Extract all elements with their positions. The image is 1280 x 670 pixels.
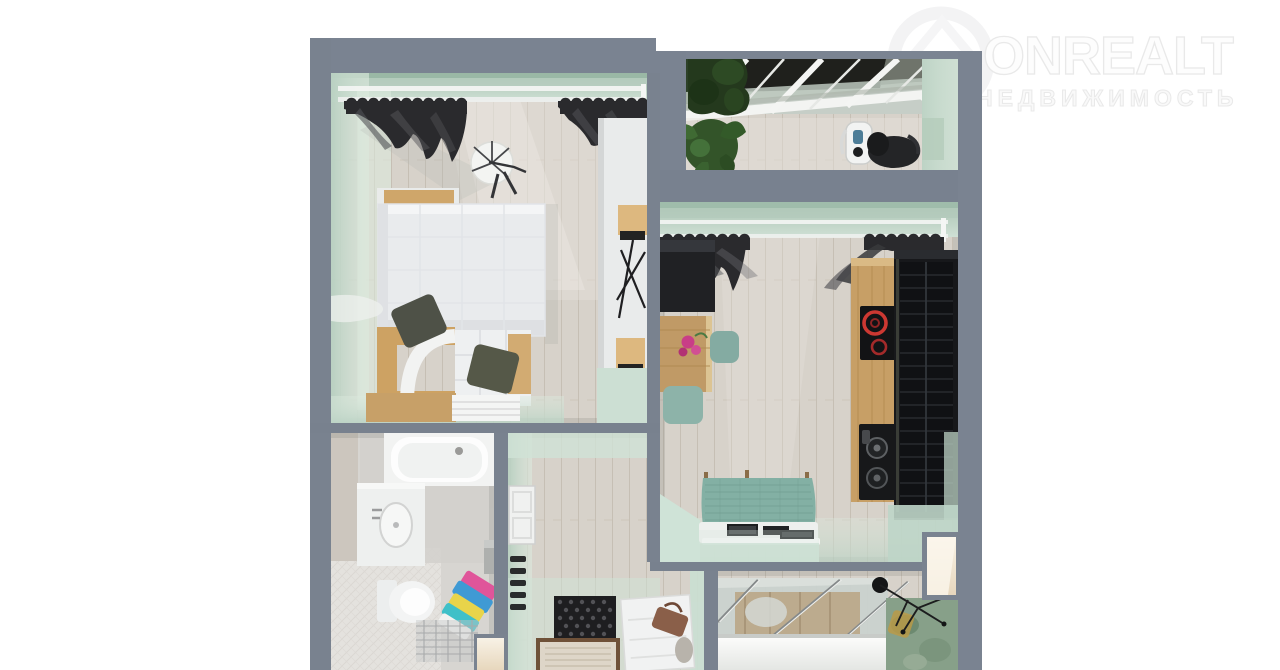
- svg-text:НЕДВИЖИМОСТЬ: НЕДВИЖИМОСТЬ: [976, 85, 1238, 111]
- svg-text:ONREALT: ONREALT: [983, 26, 1234, 86]
